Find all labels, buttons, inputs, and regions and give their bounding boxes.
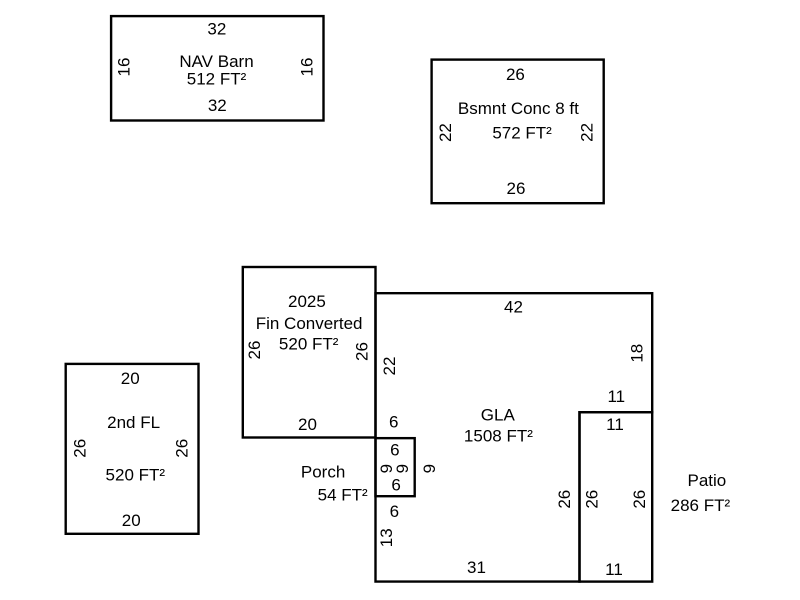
svg-text:13: 13	[377, 528, 396, 547]
svg-text:11: 11	[605, 560, 623, 579]
svg-text:26: 26	[71, 439, 90, 458]
svg-text:31: 31	[467, 558, 486, 577]
svg-text:20: 20	[121, 369, 140, 388]
svg-text:520 FT²: 520 FT²	[106, 465, 166, 484]
svg-text:16: 16	[297, 58, 316, 77]
svg-text:11: 11	[607, 387, 625, 406]
svg-text:18: 18	[628, 344, 647, 363]
svg-text:26: 26	[245, 341, 264, 360]
svg-text:Fin Converted: Fin Converted	[256, 314, 363, 333]
svg-text:286 FT²: 286 FT²	[671, 496, 731, 515]
svg-text:32: 32	[208, 96, 227, 115]
svg-text:GLA: GLA	[481, 406, 516, 425]
svg-text:Patio: Patio	[688, 471, 727, 490]
svg-text:6: 6	[391, 476, 400, 495]
svg-text:1508 FT²: 1508 FT²	[464, 426, 533, 445]
svg-text:26: 26	[582, 490, 601, 509]
svg-text:NAV Barn: NAV Barn	[179, 52, 253, 71]
svg-text:22: 22	[380, 357, 399, 376]
svg-text:20: 20	[298, 415, 317, 434]
svg-text:2nd FL: 2nd FL	[107, 413, 160, 432]
svg-text:9: 9	[420, 464, 439, 473]
svg-text:54 FT²: 54 FT²	[318, 485, 368, 504]
svg-text:20: 20	[122, 511, 141, 530]
svg-text:26: 26	[507, 179, 526, 198]
svg-text:9: 9	[393, 464, 412, 473]
svg-text:520 FT²: 520 FT²	[279, 334, 339, 353]
svg-text:Porch: Porch	[301, 463, 345, 482]
svg-text:32: 32	[207, 20, 226, 39]
svg-text:26: 26	[506, 65, 525, 84]
svg-text:6: 6	[389, 412, 398, 431]
svg-text:26: 26	[173, 439, 192, 458]
svg-text:26: 26	[555, 490, 574, 509]
svg-text:572 FT²: 572 FT²	[492, 123, 552, 142]
svg-text:26: 26	[630, 490, 649, 509]
svg-text:6: 6	[390, 441, 399, 460]
svg-text:6: 6	[390, 502, 399, 521]
svg-text:26: 26	[352, 342, 371, 361]
svg-text:11: 11	[606, 415, 624, 434]
svg-text:16: 16	[114, 58, 133, 77]
svg-text:512 FT²: 512 FT²	[187, 70, 247, 89]
svg-text:2025: 2025	[288, 292, 326, 311]
svg-text:Bsmnt Conc 8 ft: Bsmnt Conc 8 ft	[458, 99, 579, 118]
svg-text:22: 22	[578, 123, 597, 142]
svg-text:22: 22	[436, 123, 455, 142]
svg-text:42: 42	[504, 298, 523, 317]
